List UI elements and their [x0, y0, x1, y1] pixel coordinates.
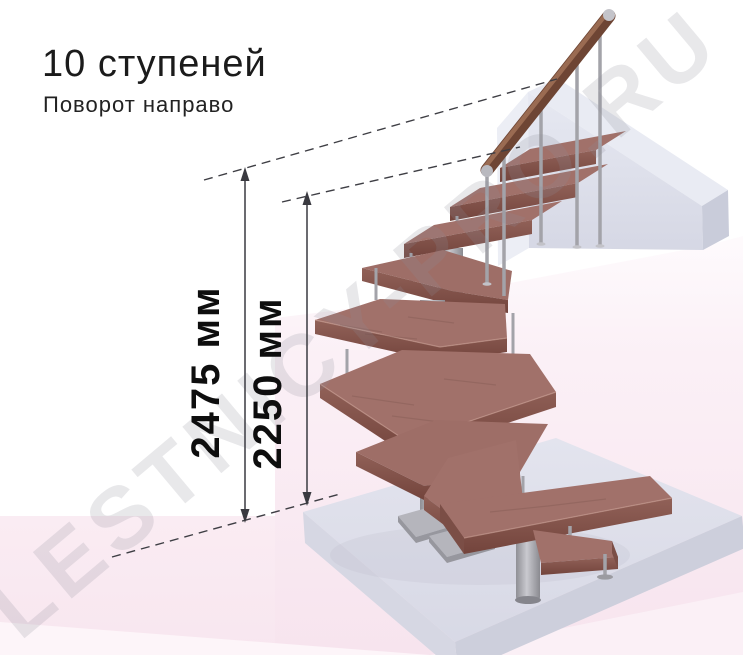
baluster-flange [596, 244, 605, 248]
baluster-flange [483, 282, 492, 286]
column-base [515, 596, 541, 604]
baluster-flange [573, 245, 582, 249]
post-base-disc [597, 574, 613, 579]
handrail-end-cap [603, 9, 615, 21]
dimension-label-2475: 2475 мм [184, 285, 228, 458]
page-subtitle: Поворот направо [43, 92, 234, 117]
page-title: 10 ступеней [42, 43, 267, 85]
baluster-flange [537, 242, 546, 246]
staircase-diagram: LESTNICY-PRO.RU 2475 мм 2250 мм 10 ступе… [0, 0, 743, 655]
staircase-diagram-page: LESTNICY-PRO.RU 2475 мм 2250 мм 10 ступе… [0, 0, 743, 655]
dimension-label-2250: 2250 мм [246, 296, 290, 469]
